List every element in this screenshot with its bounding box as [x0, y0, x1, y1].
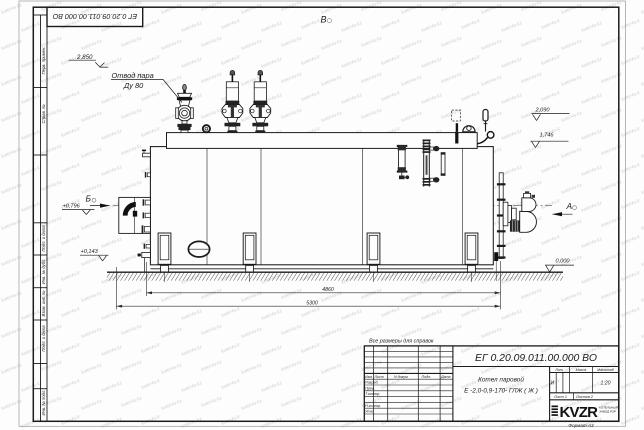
svg-text:ЕГ 0.20.09.011.00.000 ВО: ЕГ 0.20.09.011.00.000 ВО	[52, 12, 137, 21]
svg-text:ЗАВОД РЗР: ЗАВОД РЗР	[599, 410, 616, 414]
svg-text:Взам. инв. №: Взам. инв. №	[41, 290, 46, 316]
svg-text:+0,796: +0,796	[63, 204, 81, 210]
svg-text:И: И	[551, 381, 555, 387]
svg-text:Перв. примен.: Перв. примен.	[41, 47, 46, 75]
svg-text:Инв. № подл.: Инв. № подл.	[41, 390, 46, 416]
svg-text:2,090: 2,090	[535, 108, 551, 114]
svg-text:Лист: Лист	[374, 375, 384, 379]
svg-text:Масштаб: Масштаб	[597, 368, 615, 372]
svg-text:Ду 80: Ду 80	[123, 81, 144, 90]
svg-text:Т.контр.: Т.контр.	[365, 392, 380, 396]
svg-text:Масса: Масса	[576, 368, 587, 372]
svg-text:1,746: 1,746	[540, 133, 555, 139]
svg-text:Листов 2: Листов 2	[575, 395, 594, 399]
svg-text:5300: 5300	[306, 301, 318, 307]
svg-text:В: В	[321, 14, 327, 24]
svg-text:Подп. и дата: Подп. и дата	[41, 225, 46, 252]
svg-text:Лист 1: Лист 1	[553, 395, 567, 399]
svg-text:Формат А3: Формат А3	[568, 423, 594, 428]
svg-text:Изм.: Изм.	[365, 375, 373, 379]
svg-text:Пров.: Пров.	[365, 386, 375, 390]
svg-text:1:20: 1:20	[600, 381, 610, 387]
svg-text:Н.контр.: Н.контр.	[365, 404, 381, 408]
svg-text:2,850: 2,850	[76, 54, 93, 61]
svg-text:Лит.: Лит.	[554, 368, 563, 372]
svg-text:+0,143: +0,143	[81, 249, 99, 255]
svg-text:Котел паровой: Котел паровой	[478, 375, 524, 383]
svg-text:N докум.: N докум.	[394, 375, 409, 379]
svg-text:0,000: 0,000	[556, 258, 571, 264]
svg-text:Подп.: Подп.	[422, 375, 432, 379]
svg-text:Дата: Дата	[440, 375, 450, 379]
svg-text:4860: 4860	[322, 287, 334, 293]
svg-text:Справ. №: Справ. №	[41, 104, 46, 123]
svg-text:Б: Б	[86, 194, 92, 204]
svg-text:ЕГ 0.20.09.011.00.000 ВО: ЕГ 0.20.09.011.00.000 ВО	[475, 353, 597, 364]
svg-text:Отвод пара: Отвод пара	[112, 71, 154, 80]
svg-text:А: А	[566, 201, 573, 211]
svg-text:Разраб.: Разраб.	[365, 381, 379, 385]
svg-text:Все размеры для справок: Все размеры для справок	[369, 339, 434, 345]
svg-text:KVZR: KVZR	[560, 404, 599, 421]
svg-text:Подп. и дата: Подп. и дата	[41, 325, 46, 352]
svg-text:Утв.: Утв.	[365, 410, 374, 414]
svg-text:Инв. № дубл.: Инв. № дубл.	[41, 259, 46, 285]
svg-text:Е -2,0-0,9-170- ГЛЖ ( Ж ): Е -2,0-0,9-170- ГЛЖ ( Ж )	[464, 388, 538, 395]
